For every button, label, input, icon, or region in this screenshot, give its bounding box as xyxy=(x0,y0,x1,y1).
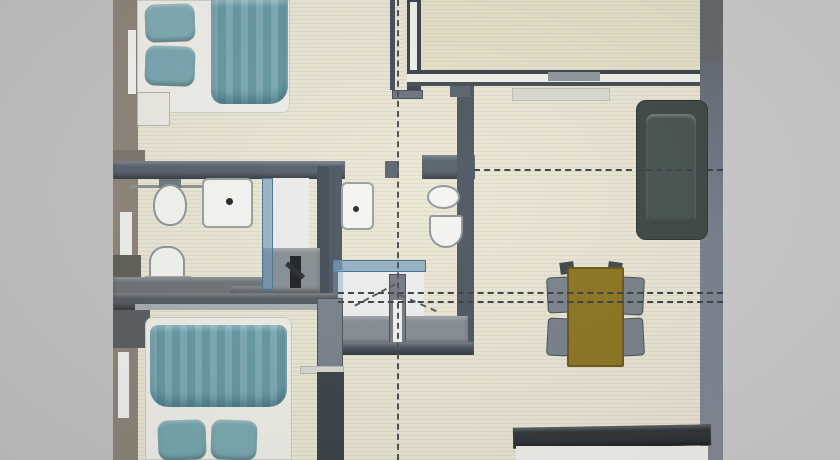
wall-bathroom2-bottom xyxy=(330,342,474,355)
wall-hall-divider xyxy=(390,0,395,90)
shower-2-glass-top xyxy=(333,260,426,272)
floor-plan-photo xyxy=(0,0,840,460)
toilet-1 xyxy=(153,184,187,226)
window-left-top xyxy=(128,30,136,94)
doormat xyxy=(512,88,610,101)
shower-1-glass xyxy=(262,178,273,290)
bidet xyxy=(429,215,463,248)
nightstand-1 xyxy=(137,92,170,126)
pillar-top-right xyxy=(700,0,723,62)
shower-1-interior xyxy=(271,178,309,256)
bed-2-pillow-right xyxy=(210,419,257,460)
wall-bedroom2-right xyxy=(317,372,344,460)
wall-bathroom1-top xyxy=(113,161,345,179)
section-line-h1 xyxy=(474,169,723,171)
floor-terrace-room xyxy=(405,0,723,78)
window-left-middle xyxy=(120,212,132,258)
section-line-h3 xyxy=(338,301,723,303)
dining-table xyxy=(567,267,624,367)
sink-1-drain xyxy=(226,198,233,205)
shower-2-interior xyxy=(338,270,424,322)
bed-2-duvet xyxy=(150,325,287,407)
window-left-bottom xyxy=(118,352,129,418)
bed-1-pillow-top xyxy=(144,3,195,43)
entry-threshold xyxy=(450,85,470,97)
bed-1-pillow-bottom xyxy=(144,45,195,87)
door-terrace xyxy=(548,72,600,81)
ledge-bedroom2-top xyxy=(135,304,320,310)
photo-margin-right xyxy=(723,0,840,460)
sink-2-drain xyxy=(353,206,359,212)
kitchen-counter-front xyxy=(516,446,708,460)
section-line-vertical xyxy=(397,0,399,460)
wardrobe-bedroom2 xyxy=(317,298,343,368)
bed-2-pillow-left xyxy=(157,419,206,460)
photo-margin-left xyxy=(0,0,113,460)
bed-1-duvet xyxy=(211,0,288,104)
toilet-3 xyxy=(427,185,460,209)
section-line-h2 xyxy=(338,292,723,294)
